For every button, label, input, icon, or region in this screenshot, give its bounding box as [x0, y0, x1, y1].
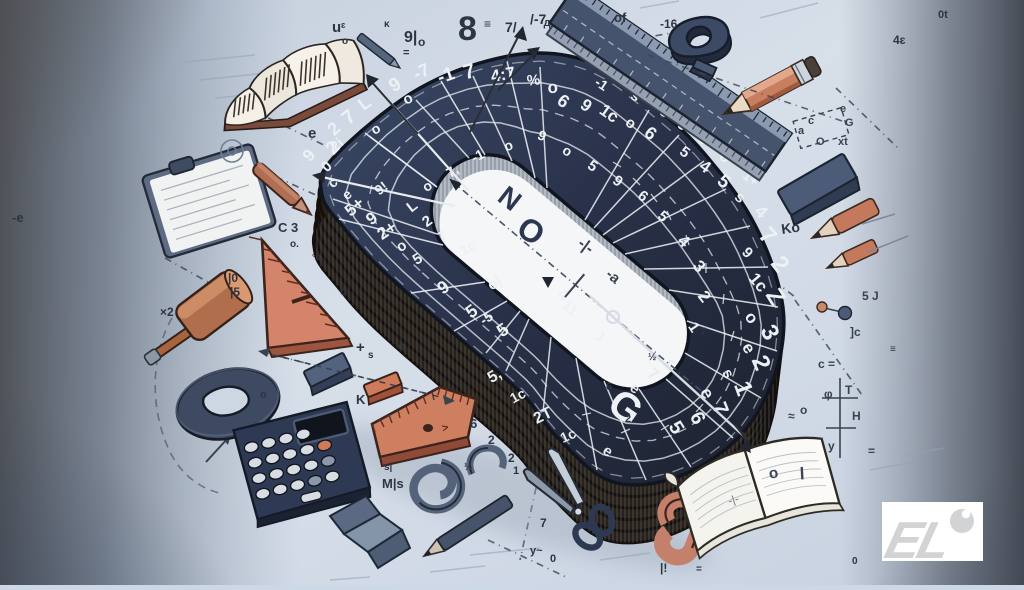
svg-text:o:: o:	[340, 286, 350, 298]
svg-text:=: =	[868, 444, 875, 458]
svg-text:a: a	[798, 125, 805, 137]
svg-text:H: H	[852, 409, 861, 423]
svg-text:2: 2	[508, 451, 515, 465]
svg-text:o: o	[547, 78, 558, 97]
svg-text:s: s	[368, 350, 374, 361]
svg-text:7/: 7/	[505, 19, 517, 35]
svg-text:+: +	[356, 339, 365, 356]
svg-text:½: ½	[648, 352, 656, 363]
svg-text:o: o	[342, 36, 348, 47]
svg-text:κ: κ	[384, 19, 390, 30]
svg-text:8: 8	[458, 10, 477, 48]
svg-text:c =: c =	[818, 357, 835, 371]
svg-text:0t: 0t	[938, 9, 948, 21]
svg-text:1: 1	[513, 465, 519, 477]
svg-text:≡: ≡	[890, 344, 896, 355]
svg-text:Ko: Ko	[780, 219, 801, 237]
svg-text:e: e	[308, 125, 316, 142]
svg-text:s|: s|	[384, 462, 393, 473]
svg-text:y~: y~	[530, 545, 543, 557]
svg-text:M|s: M|s	[382, 476, 404, 491]
svg-text:e: e	[840, 103, 846, 115]
svg-text:0: 0	[852, 556, 858, 567]
svg-text:C 3: C 3	[278, 220, 298, 235]
svg-text:y: y	[828, 439, 835, 453]
svg-text:-16: -16	[660, 17, 678, 31]
svg-text:4ɛ: 4ɛ	[893, 33, 906, 47]
svg-text:9|: 9|	[404, 29, 417, 46]
svg-text:o: o	[418, 35, 425, 49]
svg-text:ɛ: ɛ	[341, 20, 346, 30]
svg-text:°o: °o	[312, 252, 322, 262]
svg-text:×2: ×2	[160, 305, 174, 319]
svg-text:o: o	[800, 403, 807, 417]
svg-text:5 J: 5 J	[862, 289, 879, 303]
svg-text:7: 7	[540, 516, 547, 530]
svg-text:o: o	[398, 339, 405, 353]
svg-text:c: c	[808, 115, 814, 127]
svg-text:|5: |5	[230, 285, 240, 299]
svg-text:of: of	[614, 10, 627, 25]
svg-text:0: 0	[550, 553, 556, 565]
svg-text:=: =	[403, 47, 409, 59]
svg-text:-e: -e	[12, 210, 24, 225]
svg-text:G: G	[845, 117, 854, 129]
svg-text:2: 2	[488, 433, 495, 447]
svg-text:O: O	[816, 136, 825, 148]
svg-text:=: =	[696, 564, 702, 575]
svg-text:xt: xt	[838, 136, 848, 148]
svg-text:K: K	[356, 392, 366, 407]
svg-text:u: u	[332, 19, 341, 36]
svg-text:o.: o.	[290, 239, 299, 250]
svg-text:·д: ·д	[540, 17, 551, 29]
svg-text:6: 6	[606, 381, 612, 393]
svg-text:T: T	[845, 383, 853, 397]
svg-text:φ: φ	[824, 387, 833, 401]
svg-text:]c: ]c	[850, 325, 861, 339]
svg-text:%: %	[526, 71, 541, 89]
svg-text:6: 6	[470, 416, 477, 431]
svg-text:≈: ≈	[788, 409, 795, 423]
svg-text:½: ½	[464, 462, 472, 473]
svg-text:2: 2	[625, 413, 631, 425]
svg-text:7: 7	[700, 326, 706, 338]
svg-text:|0: |0	[228, 271, 238, 285]
svg-text:o: o	[260, 389, 267, 401]
svg-text:≡: ≡	[484, 17, 491, 31]
svg-text:|!: |!	[660, 561, 667, 575]
